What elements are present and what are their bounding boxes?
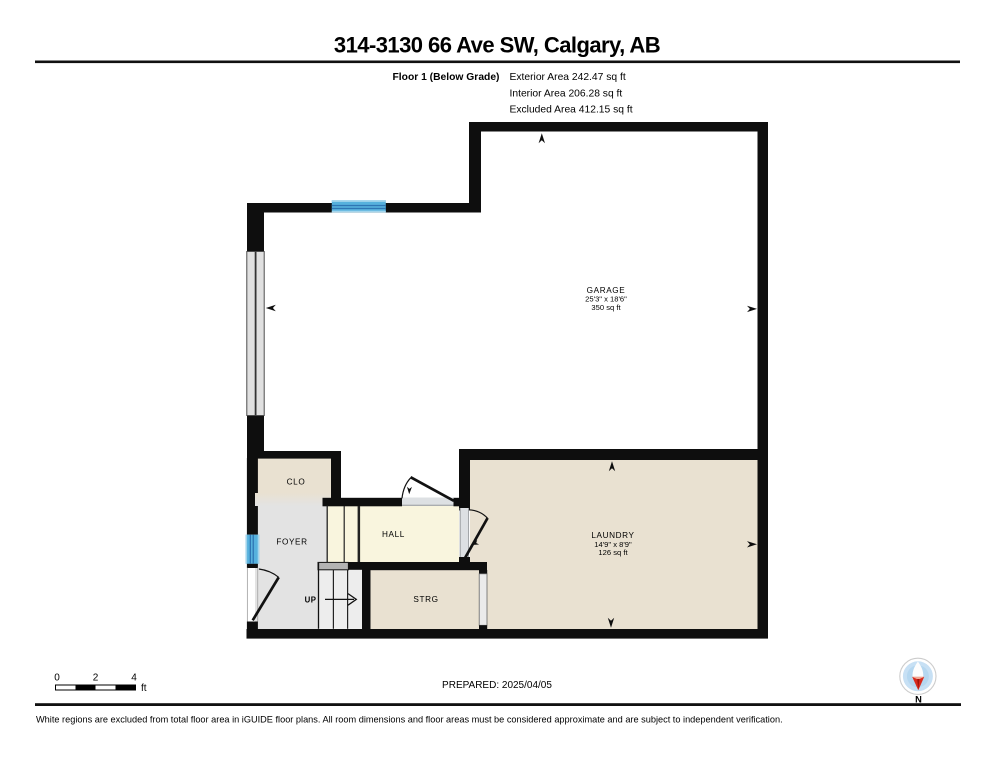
svg-text:2: 2 [93, 673, 99, 684]
svg-text:314-3130 66 Ave SW, Calgary, A: 314-3130 66 Ave SW, Calgary, AB [334, 33, 660, 58]
svg-text:N: N [915, 694, 922, 704]
svg-text:PREPARED: 2025/04/05: PREPARED: 2025/04/05 [442, 680, 552, 691]
svg-text:Interior Area 206.28 sq ft: Interior Area 206.28 sq ft [510, 88, 623, 99]
svg-text:Floor 1 (Below Grade): Floor 1 (Below Grade) [393, 72, 500, 83]
svg-text:Exterior Area 242.47 sq ft: Exterior Area 242.47 sq ft [510, 72, 626, 83]
svg-text:ft: ft [141, 683, 147, 694]
svg-text:4: 4 [131, 673, 137, 684]
svg-text:350 sq ft: 350 sq ft [591, 303, 621, 312]
svg-text:126 sq ft: 126 sq ft [598, 548, 628, 557]
svg-text:HALL: HALL [382, 530, 405, 539]
svg-text:CLO: CLO [287, 478, 306, 487]
svg-text:Excluded Area 412.15 sq ft: Excluded Area 412.15 sq ft [510, 105, 633, 116]
svg-text:FOYER: FOYER [276, 538, 307, 547]
svg-text:STRG: STRG [413, 595, 438, 604]
svg-text:0: 0 [54, 673, 60, 684]
svg-text:White regions are excluded fro: White regions are excluded from total fl… [36, 714, 783, 724]
svg-text:UP: UP [305, 596, 317, 605]
